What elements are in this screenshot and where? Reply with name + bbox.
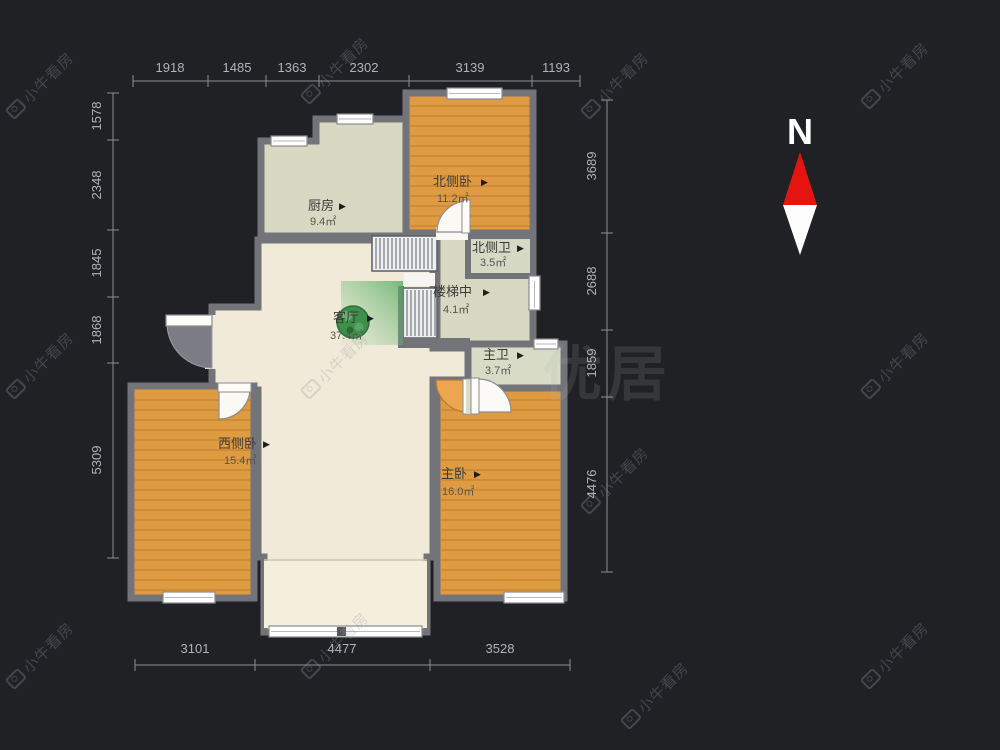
dim-left-5: 5309 (89, 446, 104, 475)
dim-top-3: 1363 (278, 60, 307, 75)
stairs-lower-run (403, 288, 437, 338)
compass-needle-south (783, 205, 817, 255)
compass-needle-north (783, 152, 817, 205)
living-bay-floor (264, 561, 427, 628)
dim-bottom-1: 3101 (181, 641, 210, 656)
dim-bottom-3: 3528 (486, 641, 515, 656)
dim-top-2: 1485 (223, 60, 252, 75)
kitchen-area: 9.4㎡ (310, 215, 336, 228)
dim-right-4: 4476 (584, 470, 599, 499)
master-bath-arrow-icon: ▶ (517, 350, 524, 360)
stairs-upper-treads (376, 238, 432, 269)
living-room-area: 37.4㎡ (330, 329, 362, 342)
living-room-label: 客厅 (333, 310, 359, 325)
kitchen-label: 厨房 (308, 198, 334, 213)
stairwell-label: 楼梯中 (433, 284, 472, 299)
dim-line-left (107, 93, 119, 558)
north-bedroom-area: 11.2㎡ (437, 192, 469, 205)
entry-door-swing (167, 323, 212, 368)
west-bedroom-arrow-icon: ▶ (263, 439, 270, 449)
west-bedroom-area: 15.4㎡ (224, 454, 256, 467)
compass: N (783, 111, 817, 255)
compass-north-label: N (787, 111, 813, 152)
master-bedroom-arrow-icon: ▶ (474, 469, 481, 479)
north-bath-area: 3.5㎡ (480, 256, 506, 269)
dim-right-3: 1859 (584, 349, 599, 378)
stair-bottom-wall (398, 338, 470, 348)
north-bath-arrow-icon: ▶ (517, 243, 524, 253)
dim-left-2: 2348 (89, 171, 104, 200)
entry-door-leaf (166, 315, 212, 326)
dim-line-top (133, 75, 580, 87)
master-bedroom-area: 16.0㎡ (442, 485, 474, 498)
entry-door (166, 315, 219, 369)
master-bedroom-label: 主卧 (441, 466, 467, 481)
dim-right-1: 3689 (584, 152, 599, 181)
dim-left-1: 1578 (89, 102, 104, 131)
dim-right-2: 2688 (584, 267, 599, 296)
living-room-arrow-icon: ▶ (367, 313, 374, 323)
room-west-bedroom (131, 386, 254, 598)
dim-left-3: 1845 (89, 249, 104, 278)
stairs-landing (404, 273, 435, 286)
dim-line-bottom (135, 659, 570, 671)
north-bedroom-arrow-icon: ▶ (481, 177, 488, 187)
kitchen-arrow-icon: ▶ (339, 201, 346, 211)
north-bath-label: 北侧卫 (472, 240, 511, 255)
stairs-upper-run (372, 236, 437, 271)
floorplan-canvas: 厨房 ▶ 9.4㎡ 北侧卧 ▶ 11.2㎡ 北侧卫 ▶ 3.5㎡ 楼梯中 ▶ 4… (0, 0, 1000, 750)
dim-line-right (601, 100, 613, 572)
west-bedroom-label: 西侧卧 (218, 436, 257, 451)
bay-window-center-post (337, 627, 346, 636)
dim-left-4: 1868 (89, 316, 104, 345)
dim-top-4: 2302 (350, 60, 379, 75)
floorplan-page: 厨房 ▶ 9.4㎡ 北侧卧 ▶ 11.2㎡ 北侧卫 ▶ 3.5㎡ 楼梯中 ▶ 4… (0, 0, 1000, 750)
west-bedroom-door-leaf (218, 383, 251, 392)
master-bath-label: 主卫 (483, 347, 509, 362)
west-bedroom-floor (131, 386, 254, 598)
stairwell-area: 4.1㎡ (443, 303, 469, 316)
master-bath-door-leaf (471, 378, 479, 414)
master-bath-area: 3.7㎡ (485, 364, 511, 377)
dim-top-1: 1918 (156, 60, 185, 75)
dim-top-6: 1193 (542, 60, 570, 75)
dim-top-5: 3139 (456, 60, 485, 75)
stairwell-arrow-icon: ▶ (483, 287, 490, 297)
dim-bottom-2: 4477 (328, 641, 357, 656)
north-bedroom-label: 北侧卧 (433, 174, 472, 189)
